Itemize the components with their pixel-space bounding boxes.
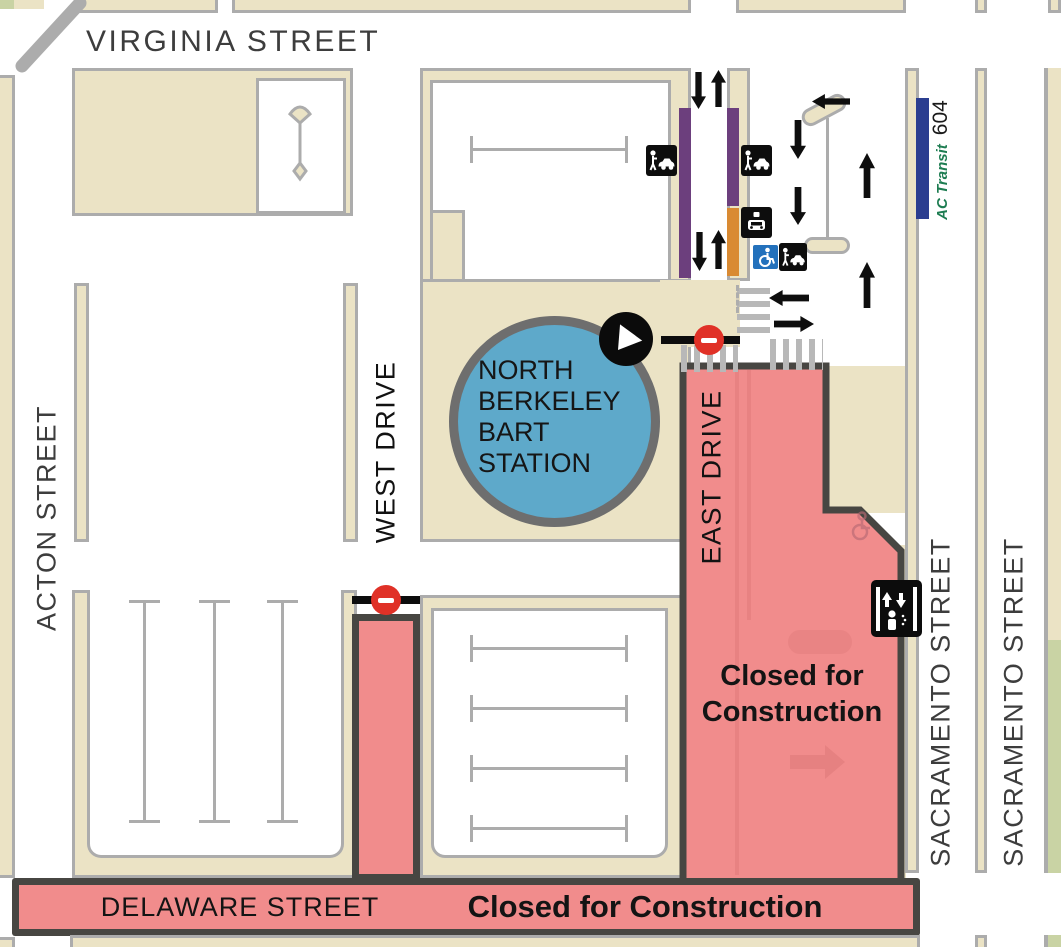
street-label-east-drive: EAST DRIVE	[697, 389, 728, 564]
parking-inset	[430, 80, 671, 282]
median-strip	[975, 0, 987, 13]
traffic-arrow-up	[711, 70, 726, 107]
crosswalk	[770, 339, 823, 370]
bus-zone-curb	[679, 108, 691, 278]
traffic-arrow-up	[711, 230, 726, 269]
crosswalk	[737, 281, 770, 333]
median-strip	[1048, 0, 1061, 13]
traffic-arrow-left	[769, 290, 809, 306]
traffic-arrow-down	[790, 120, 806, 159]
city-block	[232, 0, 691, 13]
closure-text-line2: Construction	[682, 696, 902, 729]
traffic-arrow-up	[859, 153, 875, 198]
traffic-arrow-down	[691, 72, 706, 109]
accessible-parking-icon	[753, 245, 778, 269]
bart-entrance-icon	[599, 312, 653, 366]
city-block	[736, 0, 906, 13]
median-strip	[975, 935, 987, 947]
east-edge-green	[1044, 935, 1061, 947]
kiss-and-ride-icon	[779, 243, 807, 271]
street-label-virginia: VIRGINIA STREET	[86, 25, 380, 59]
loop-island-pill	[804, 237, 850, 254]
landscape-notch	[430, 210, 465, 282]
parking-row-marker	[199, 600, 230, 823]
traffic-arrow-down	[790, 187, 806, 225]
street-label-acton: ACTON STREET	[32, 405, 63, 631]
city-block	[0, 75, 15, 878]
street-label-sacramento-1: SACRAMENTO STREET	[926, 537, 957, 867]
closed-west-drive-fill	[359, 621, 413, 874]
street-label-sacramento-2: SACRAMENTO STREET	[999, 537, 1030, 867]
taxi-zone-curb	[727, 208, 739, 276]
loop-island-stem	[826, 118, 829, 244]
no-entry-icon	[371, 585, 401, 615]
taxi-icon	[741, 207, 772, 238]
delaware-closure-text: Closed for Construction	[430, 884, 860, 930]
no-entry-icon	[694, 325, 724, 355]
traffic-arrow-down	[692, 232, 707, 271]
parking-row-marker	[470, 695, 628, 722]
station-area-map: EAST DRIVE Closed for Construction AC Tr…	[0, 0, 1061, 947]
parking-row-marker	[470, 136, 628, 163]
median-strip	[343, 283, 358, 542]
station-name: NORTH BERKELEY BART STATION	[478, 355, 621, 479]
light-pole-icon	[287, 103, 313, 185]
parking-row-marker	[470, 755, 628, 782]
street-label-delaware: DELAWARE STREET	[60, 886, 420, 928]
gate-dashed-line	[736, 285, 739, 313]
kiss-and-ride-icon	[741, 145, 772, 176]
ac-transit-route-label: AC Transit604	[929, 100, 953, 220]
city-block	[0, 937, 15, 947]
parking-row-marker	[129, 600, 160, 823]
city-block	[70, 935, 920, 947]
bus-zone-curb	[727, 108, 739, 206]
traffic-arrow-up	[859, 262, 875, 308]
parking-row-marker	[267, 600, 298, 823]
ac-transit-bus-stop	[916, 98, 929, 219]
ac-transit-logo: AC Transit	[934, 144, 951, 220]
closure-text-line1: Closed for	[682, 660, 902, 693]
parking-row-marker	[470, 815, 628, 842]
street-label-west-drive: WEST DRIVE	[371, 361, 402, 544]
parking-row-marker	[470, 635, 628, 662]
kiss-and-ride-icon	[646, 145, 677, 176]
median-strip	[74, 283, 89, 542]
elevator-icon	[871, 580, 922, 637]
